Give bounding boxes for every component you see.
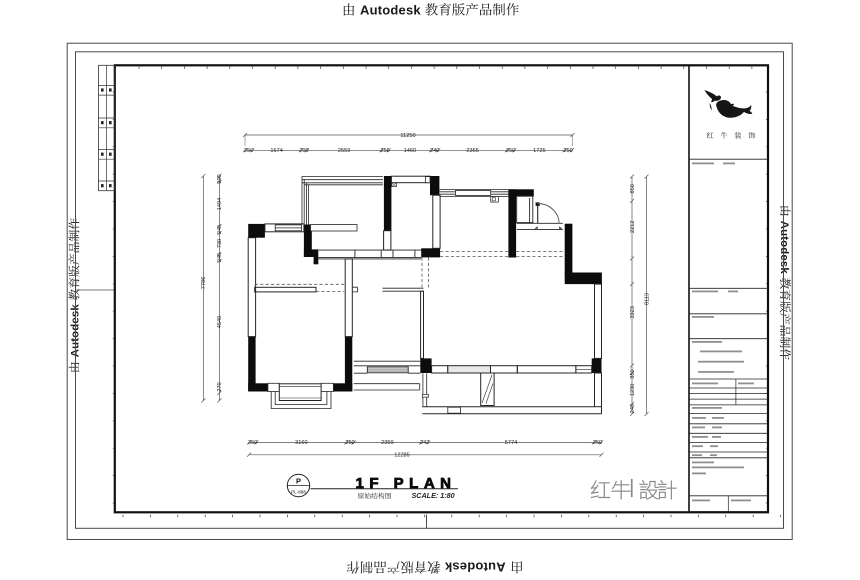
svg-text:240: 240 — [217, 253, 223, 262]
svg-text:2212: 2212 — [630, 221, 636, 233]
svg-text:8113: 8113 — [644, 293, 650, 305]
svg-text:200: 200 — [217, 174, 223, 183]
svg-text:256: 256 — [380, 148, 389, 154]
svg-text:2365: 2365 — [466, 148, 478, 154]
svg-text:250: 250 — [593, 440, 602, 446]
svg-text:3160: 3160 — [295, 440, 307, 446]
svg-text:250: 250 — [248, 440, 257, 446]
svg-text:1230: 1230 — [630, 384, 636, 396]
svg-text:242: 242 — [420, 440, 429, 446]
svg-text:730: 730 — [217, 239, 223, 248]
svg-text:250: 250 — [563, 148, 572, 154]
svg-text:2559: 2559 — [338, 148, 350, 154]
svg-text:5774: 5774 — [505, 440, 517, 446]
svg-text:240: 240 — [217, 225, 223, 234]
svg-text:Autodesk: Autodesk — [444, 559, 505, 574]
svg-text:11250: 11250 — [400, 133, 415, 139]
svg-text:250: 250 — [345, 440, 354, 446]
svg-text:4540: 4540 — [217, 316, 223, 328]
svg-text:250: 250 — [244, 148, 253, 154]
svg-text:12285: 12285 — [394, 453, 410, 459]
svg-text:1725: 1725 — [533, 148, 545, 154]
svg-text:850: 850 — [630, 184, 636, 193]
svg-text:7786: 7786 — [201, 277, 207, 289]
svg-text:Autodesk: Autodesk — [360, 3, 421, 18]
svg-text:240: 240 — [430, 148, 439, 154]
svg-text:1F PLAN: 1F PLAN — [355, 475, 456, 492]
svg-text:3923: 3923 — [630, 306, 636, 318]
svg-text:250: 250 — [506, 148, 515, 154]
svg-text:270: 270 — [217, 382, 223, 391]
svg-text:PL-888: PL-888 — [291, 490, 306, 495]
svg-text:1674: 1674 — [270, 148, 282, 154]
svg-text:SCALE: 1:80: SCALE: 1:80 — [412, 491, 455, 500]
svg-text:P: P — [296, 476, 301, 485]
svg-text:200: 200 — [299, 148, 308, 154]
svg-text:850: 850 — [630, 369, 636, 378]
svg-text:240: 240 — [630, 404, 636, 413]
svg-text:1494: 1494 — [217, 198, 223, 210]
svg-text:1460: 1460 — [404, 148, 416, 154]
svg-text:2359: 2359 — [381, 440, 393, 446]
